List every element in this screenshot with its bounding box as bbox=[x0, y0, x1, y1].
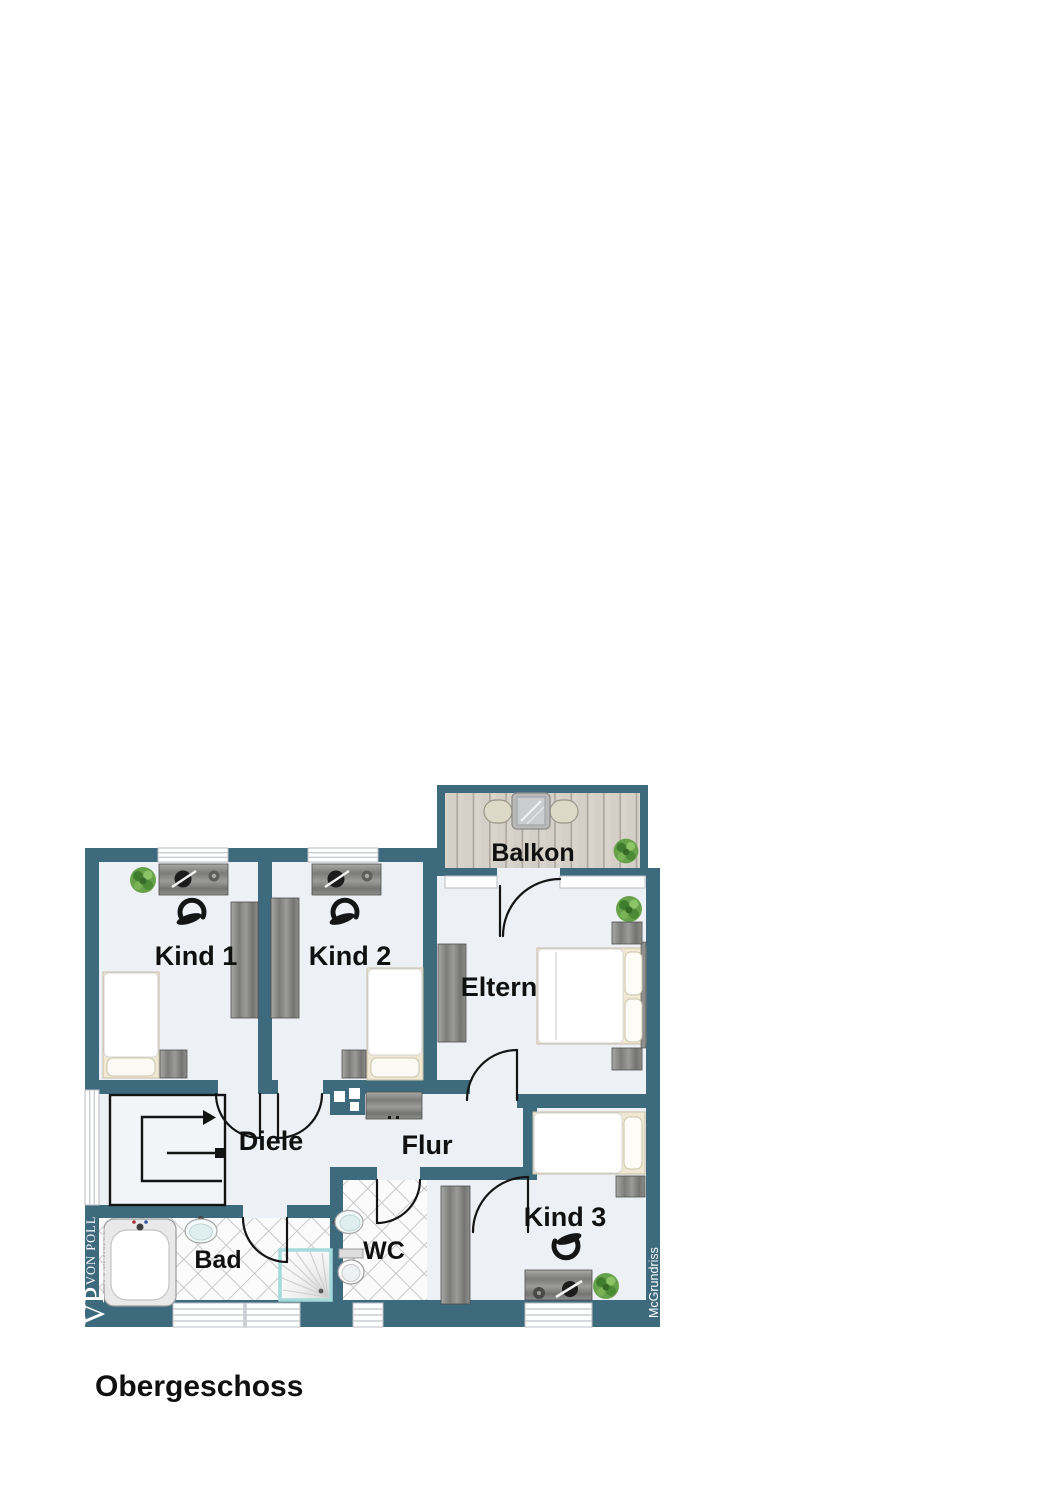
nightstand bbox=[616, 1176, 645, 1197]
window-diele bbox=[85, 1090, 99, 1205]
wall-kind2-eltern bbox=[423, 862, 437, 1080]
balcony-table bbox=[512, 793, 550, 829]
plant-icon bbox=[614, 839, 639, 864]
balcony-wall-top bbox=[437, 785, 648, 793]
bathtub bbox=[104, 1219, 176, 1306]
wall-kind1-kind2 bbox=[258, 862, 272, 1080]
bed bbox=[103, 972, 159, 1078]
desk bbox=[159, 864, 228, 895]
label-wc: WC bbox=[363, 1237, 405, 1265]
vonpoll-logo: VP VON POLL IMMOBILIEN® bbox=[78, 1216, 111, 1325]
nightstand bbox=[160, 1050, 187, 1078]
window-kind1 bbox=[158, 848, 228, 862]
toilet bbox=[338, 1249, 364, 1284]
desk bbox=[312, 864, 381, 895]
plant-icon bbox=[130, 867, 156, 893]
label-diele: Diele bbox=[239, 1126, 304, 1156]
page-title: Obergeschoss bbox=[95, 1370, 303, 1403]
window-kind2 bbox=[308, 848, 378, 862]
label-eltern: Eltern bbox=[461, 972, 538, 1002]
sideboard bbox=[366, 1092, 422, 1119]
plant-icon bbox=[616, 896, 642, 922]
balcony-wall-bottom-left bbox=[437, 868, 497, 876]
window-bad bbox=[173, 1303, 300, 1327]
vonpoll-subtitle: IMMOBILIEN® bbox=[100, 1227, 107, 1284]
flur-furniture bbox=[366, 1092, 422, 1119]
label-bad: Bad bbox=[194, 1246, 241, 1274]
nightstand bbox=[612, 1048, 642, 1070]
floorplan-page: Kind 1 Kind 2 Eltern Balkon Diele Flur B… bbox=[0, 0, 1060, 1500]
wall-diele-bad-a bbox=[99, 1205, 243, 1218]
label-balkon: Balkon bbox=[491, 839, 574, 867]
label-kind3: Kind 3 bbox=[524, 1202, 607, 1232]
wall-flur-bottom-a bbox=[343, 1167, 377, 1180]
watermark-text: McGrundriss bbox=[647, 1247, 661, 1318]
wall-diele-bad-b bbox=[287, 1205, 330, 1218]
nightstand bbox=[612, 922, 642, 944]
plant-icon bbox=[593, 1273, 619, 1299]
watermark-group: McGrundriss bbox=[647, 1247, 661, 1318]
label-flur: Flur bbox=[402, 1130, 453, 1160]
wall-eltern-kind3 bbox=[517, 1094, 646, 1108]
double-bed bbox=[537, 942, 646, 1048]
vonpoll-name: VON POLL bbox=[84, 1216, 98, 1285]
stair-start-marker bbox=[215, 1148, 225, 1158]
wall-flur-bottom-b bbox=[420, 1167, 523, 1180]
window-wc bbox=[353, 1303, 383, 1327]
label-kind2: Kind 2 bbox=[309, 941, 392, 971]
bed bbox=[533, 1112, 645, 1174]
vonpoll-monogram: VP bbox=[78, 1287, 111, 1325]
wardrobe bbox=[441, 1186, 470, 1304]
nightstand bbox=[342, 1050, 366, 1078]
balcony-wall-left bbox=[437, 785, 445, 876]
wall-kind1-diele bbox=[99, 1080, 218, 1094]
wall-top bbox=[85, 848, 445, 862]
wardrobe bbox=[271, 898, 299, 1018]
wall-divider-end bbox=[258, 1080, 278, 1094]
balcony-wall-right bbox=[640, 785, 648, 876]
bed bbox=[367, 968, 423, 1080]
desk bbox=[525, 1270, 592, 1300]
floorplan-svg: Kind 1 Kind 2 Eltern Balkon Diele Flur B… bbox=[0, 0, 1060, 1500]
balcony-chair bbox=[550, 800, 578, 823]
balcony-wall-bottom-right bbox=[560, 868, 648, 876]
label-kind1: Kind 1 bbox=[155, 941, 238, 971]
window-kind3 bbox=[525, 1303, 592, 1327]
balcony-chair bbox=[484, 800, 512, 823]
staircase bbox=[110, 1095, 225, 1205]
